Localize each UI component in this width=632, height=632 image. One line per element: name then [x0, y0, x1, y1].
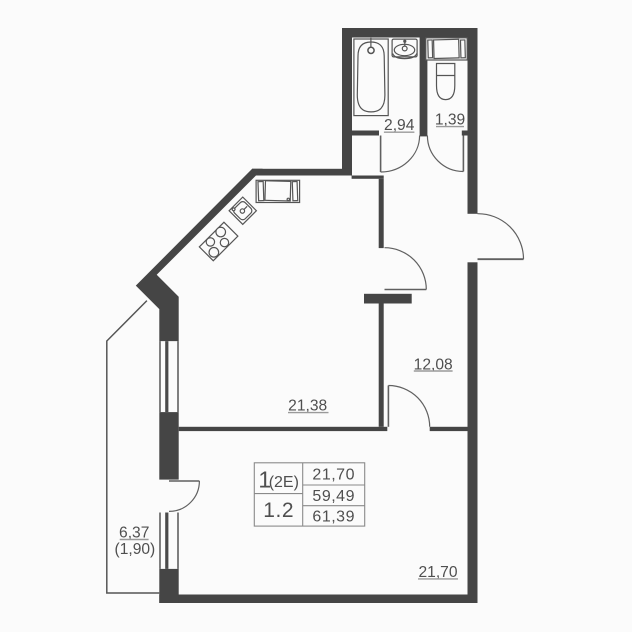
- svg-text:59,49: 59,49: [312, 488, 355, 505]
- svg-text:61,39: 61,39: [312, 509, 355, 526]
- svg-text:2,94: 2,94: [384, 117, 415, 134]
- svg-text:1.2: 1.2: [263, 499, 294, 522]
- svg-text:(1,90): (1,90): [115, 541, 156, 558]
- svg-text:21,70: 21,70: [312, 467, 355, 484]
